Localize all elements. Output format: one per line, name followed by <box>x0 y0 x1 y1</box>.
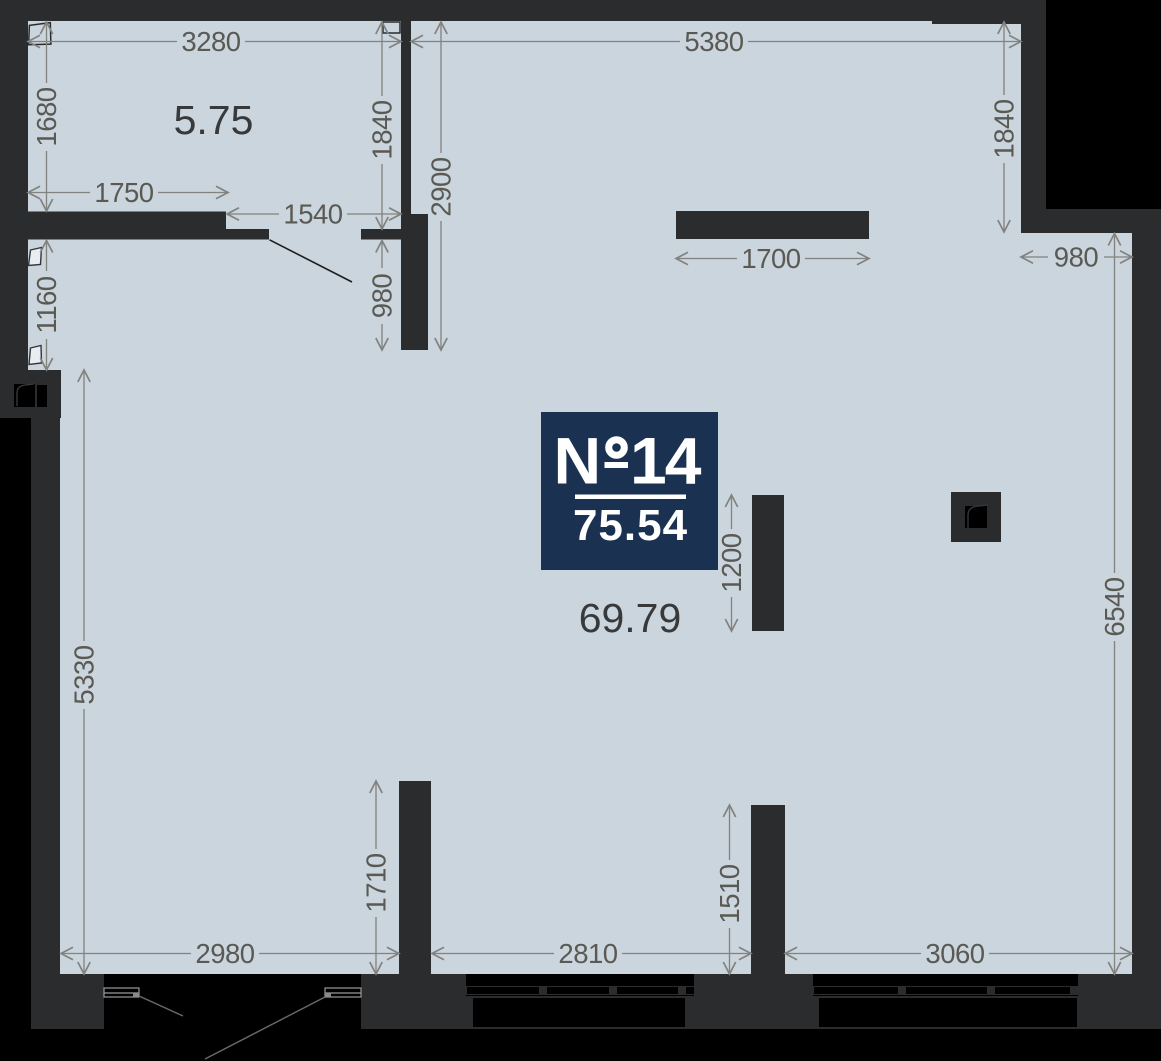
svg-text:2980: 2980 <box>195 938 254 969</box>
svg-text:1160: 1160 <box>31 276 62 333</box>
svg-text:980: 980 <box>1054 242 1099 273</box>
svg-text:1710: 1710 <box>361 853 392 912</box>
svg-text:6540: 6540 <box>1099 577 1130 636</box>
svg-text:1840: 1840 <box>367 100 398 159</box>
svg-text:75.54: 75.54 <box>573 501 688 550</box>
svg-text:5380: 5380 <box>684 26 743 57</box>
svg-text:1750: 1750 <box>94 177 153 208</box>
svg-text:5.75: 5.75 <box>174 97 254 143</box>
svg-text:5330: 5330 <box>69 645 100 704</box>
svg-text:1510: 1510 <box>714 864 745 923</box>
svg-text:N: N <box>554 424 602 498</box>
svg-text:3060: 3060 <box>925 938 984 969</box>
svg-text:1200: 1200 <box>716 533 747 592</box>
svg-text:1540: 1540 <box>283 199 342 230</box>
svg-text:3280: 3280 <box>181 26 240 57</box>
svg-text:14: 14 <box>630 424 702 498</box>
svg-text:2810: 2810 <box>558 938 617 969</box>
svg-text:1840: 1840 <box>989 99 1020 158</box>
svg-text:2900: 2900 <box>426 157 457 216</box>
svg-text:69.79: 69.79 <box>579 595 682 641</box>
svg-text:1700: 1700 <box>741 243 800 274</box>
svg-text:1680: 1680 <box>31 87 62 146</box>
svg-text:980: 980 <box>367 274 398 319</box>
